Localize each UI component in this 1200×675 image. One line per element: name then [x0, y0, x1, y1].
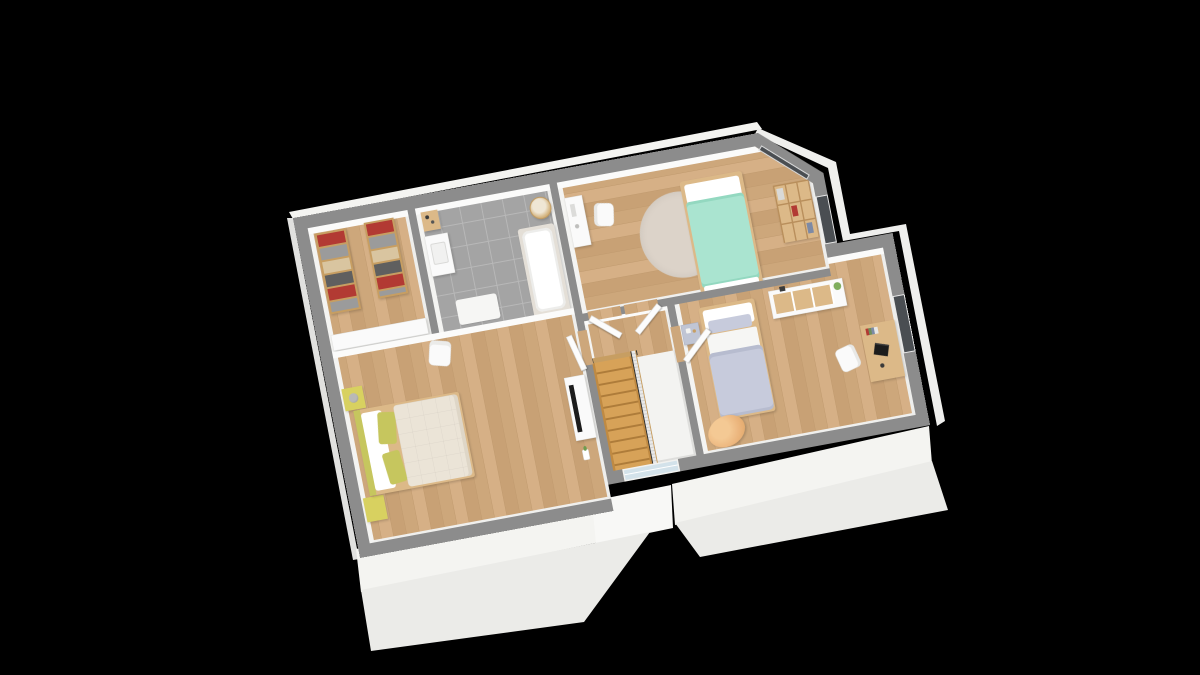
- vanity-items-2: [575, 224, 580, 229]
- books-2: [791, 205, 799, 217]
- bathtub-basin: [521, 227, 567, 313]
- clothes-rack-2: [364, 218, 409, 299]
- dresser-plant: [833, 282, 842, 291]
- nightstand-items-2: [692, 329, 696, 333]
- bath-mat: [455, 293, 501, 325]
- desk-mug: [880, 363, 885, 368]
- sink-cabinet: [424, 232, 455, 276]
- dresser-book: [779, 286, 785, 292]
- toiletry-bottle-2: [431, 220, 435, 224]
- toiletry-bottles: [425, 215, 429, 220]
- armchair-white: [428, 340, 451, 367]
- scene: [0, 0, 1200, 675]
- clothes-rack: [315, 228, 362, 314]
- books-3: [806, 222, 814, 234]
- desk-books: [865, 327, 878, 336]
- vanity-desk: [564, 195, 591, 248]
- cube-bookshelf: [773, 179, 819, 243]
- laptop: [874, 343, 889, 356]
- bed-mint-duvet: [686, 192, 760, 289]
- bed-mint: [679, 171, 764, 301]
- bed-master: [353, 392, 475, 497]
- flower-stems: [583, 446, 587, 451]
- flower-vase: [582, 449, 591, 461]
- tv: [569, 385, 583, 433]
- sink-basin: [430, 241, 449, 265]
- bed-lavender-duvet: [708, 344, 774, 419]
- table-lamp: [348, 392, 359, 403]
- bath-side-table: [420, 210, 441, 232]
- desk-chair-2: [834, 343, 863, 374]
- laundry-basket: [528, 195, 554, 221]
- nightstand-yellow-1: [341, 386, 366, 412]
- vanity-items: [570, 204, 577, 217]
- nightstand-items: [685, 328, 691, 334]
- desk-chair-1: [594, 203, 614, 226]
- nightstand-yellow-2: [363, 495, 388, 523]
- books: [776, 188, 785, 201]
- bed-lavender: [698, 298, 776, 421]
